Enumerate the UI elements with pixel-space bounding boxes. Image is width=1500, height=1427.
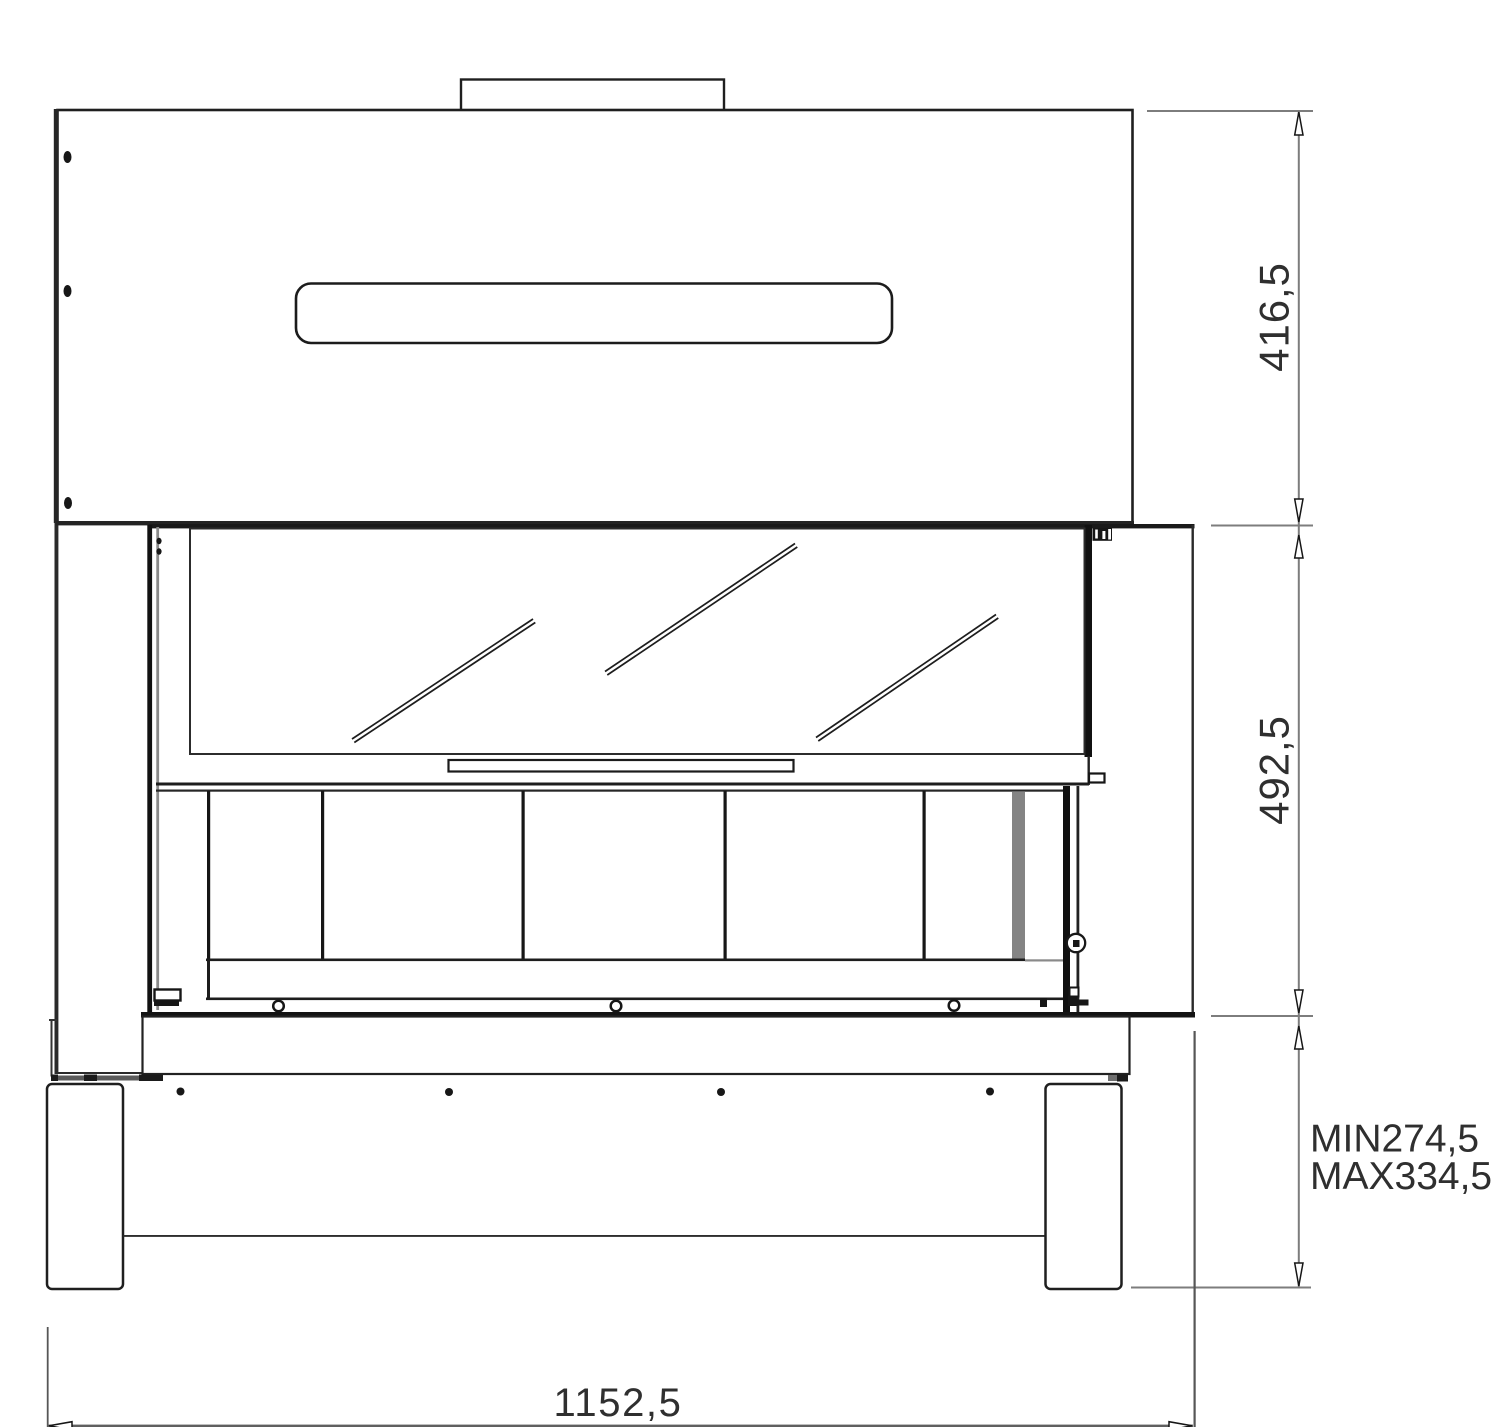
svg-text:492,5: 492,5	[1251, 715, 1298, 825]
svg-text:1152,5: 1152,5	[554, 1381, 683, 1425]
svg-text:416,5: 416,5	[1251, 262, 1298, 372]
svg-text:MAX334,5: MAX334,5	[1310, 1155, 1492, 1198]
